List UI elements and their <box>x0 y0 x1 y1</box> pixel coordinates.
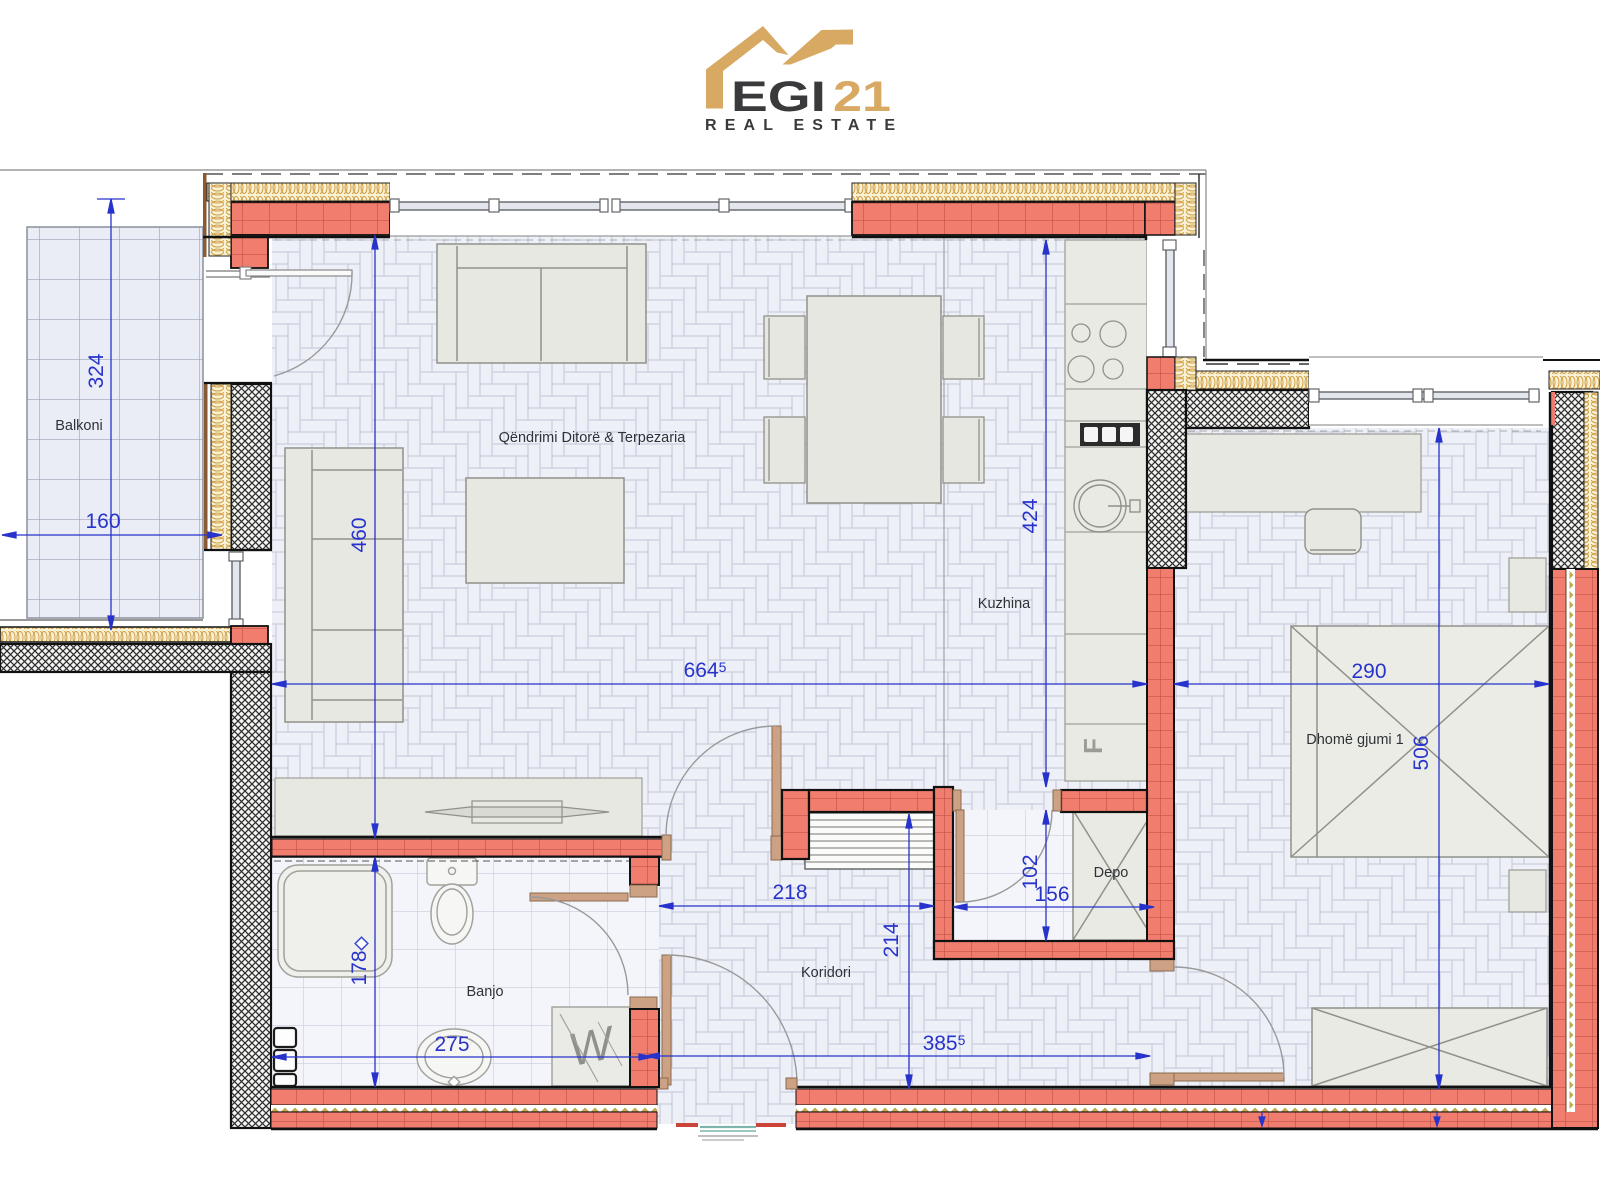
svg-text:460: 460 <box>348 517 371 552</box>
svg-text:Kuzhina: Kuzhina <box>978 596 1031 612</box>
svg-text:Qëndrimi Ditorë & Terpezaria: Qëndrimi Ditorë & Terpezaria <box>499 430 687 446</box>
svg-text:EGI: EGI <box>731 73 826 121</box>
svg-text:178: 178 <box>348 950 371 985</box>
svg-text:506: 506 <box>1410 735 1433 770</box>
svg-text:Balkoni: Balkoni <box>55 418 103 434</box>
svg-text:REAL ESTATE: REAL ESTATE <box>705 117 895 134</box>
svg-text:290: 290 <box>1351 660 1386 683</box>
svg-text:424: 424 <box>1019 498 1042 533</box>
svg-text:Banjo: Banjo <box>466 984 503 1000</box>
svg-text:156: 156 <box>1034 883 1069 906</box>
svg-text:218: 218 <box>772 881 807 904</box>
svg-text:F: F <box>1078 738 1108 754</box>
svg-text:21: 21 <box>833 73 891 121</box>
svg-text:Dhomë gjumi 1: Dhomë gjumi 1 <box>1306 732 1404 748</box>
svg-text:324: 324 <box>85 353 108 388</box>
svg-text:160: 160 <box>85 510 120 533</box>
svg-text:Koridori: Koridori <box>801 965 851 981</box>
svg-text:214: 214 <box>880 922 903 957</box>
svg-text:275: 275 <box>434 1033 469 1056</box>
svg-text:Depo: Depo <box>1094 865 1129 881</box>
